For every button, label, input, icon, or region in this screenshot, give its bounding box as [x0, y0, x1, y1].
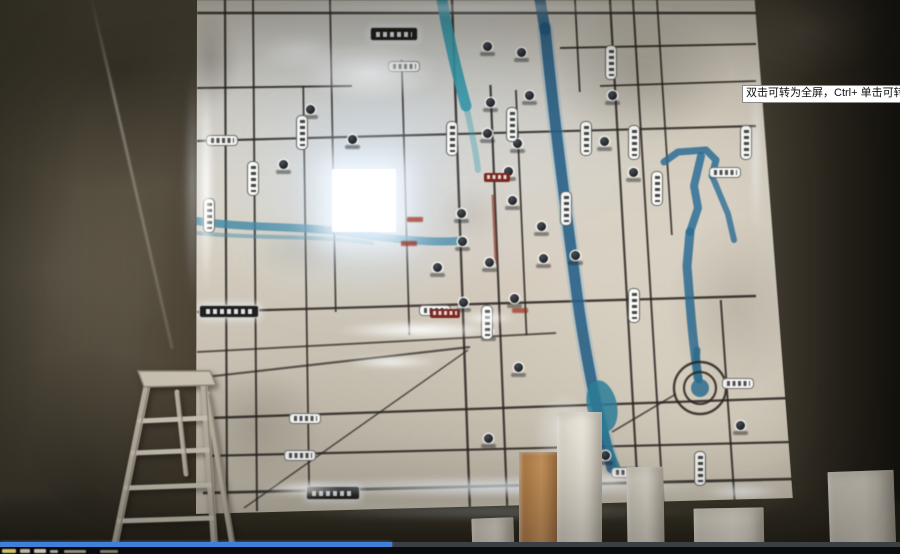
control-bar-fragment: [100, 550, 118, 553]
control-bar-fragment: [2, 549, 16, 553]
foreground-column: [557, 412, 602, 554]
video-control-bar[interactable]: [0, 547, 900, 554]
video-frame: 双击可转为全屏，Ctrl+ 单击可转为: [0, 0, 900, 554]
fullscreen-tooltip: 双击可转为全屏，Ctrl+ 单击可转为: [742, 85, 900, 103]
control-bar-fragment: [50, 550, 58, 553]
photo-layer: [0, 0, 900, 554]
foreground-column: [519, 452, 560, 554]
control-bar-fragment: [20, 549, 30, 553]
control-bar-fragment: [34, 549, 46, 553]
control-bar-fragment: [64, 550, 86, 553]
step-ladder: [0, 0, 900, 554]
fullscreen-tooltip-text: 双击可转为全屏，Ctrl+ 单击可转为: [746, 87, 900, 99]
foreground-column: [626, 467, 665, 554]
